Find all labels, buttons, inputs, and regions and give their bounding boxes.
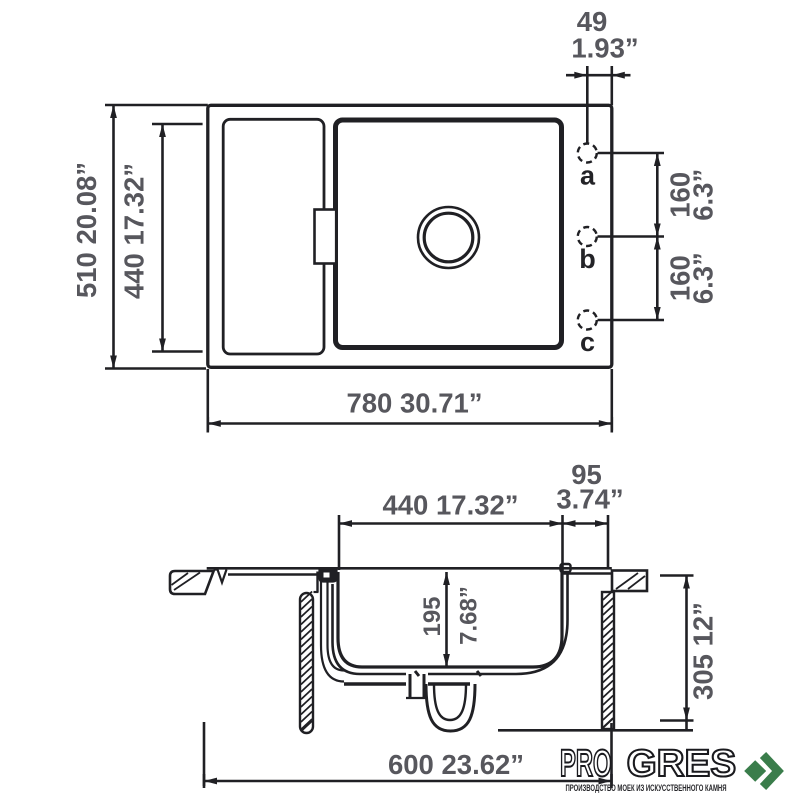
svg-text:440 17.32”: 440 17.32” (119, 163, 150, 299)
svg-text:b: b (579, 244, 596, 274)
svg-text:195: 195 (419, 596, 446, 636)
svg-text:c: c (580, 327, 595, 357)
svg-text:ПРОИЗВОДСТВО МОЕК ИЗ ИСКУССТВЕ: ПРОИЗВОДСТВО МОЕК ИЗ ИСКУССТВЕННОГО КАМН… (566, 783, 727, 794)
svg-text:3.74”: 3.74” (556, 484, 623, 515)
svg-text:a: a (580, 161, 596, 191)
svg-text:1.93”: 1.93” (571, 33, 638, 64)
svg-text:780 30.71”: 780 30.71” (346, 388, 482, 419)
svg-text:600 23.62”: 600 23.62” (388, 749, 524, 780)
svg-text:440 17.32”: 440 17.32” (382, 490, 518, 521)
svg-text:6.3”: 6.3” (688, 169, 719, 221)
svg-text:305 12”: 305 12” (688, 602, 719, 700)
svg-text:7.68”: 7.68” (456, 586, 483, 645)
svg-text:6.3”: 6.3” (688, 252, 719, 304)
svg-text:PRO: PRO (560, 743, 612, 785)
svg-text:510 20.08”: 510 20.08” (71, 162, 102, 298)
svg-text:GRES: GRES (627, 743, 737, 785)
